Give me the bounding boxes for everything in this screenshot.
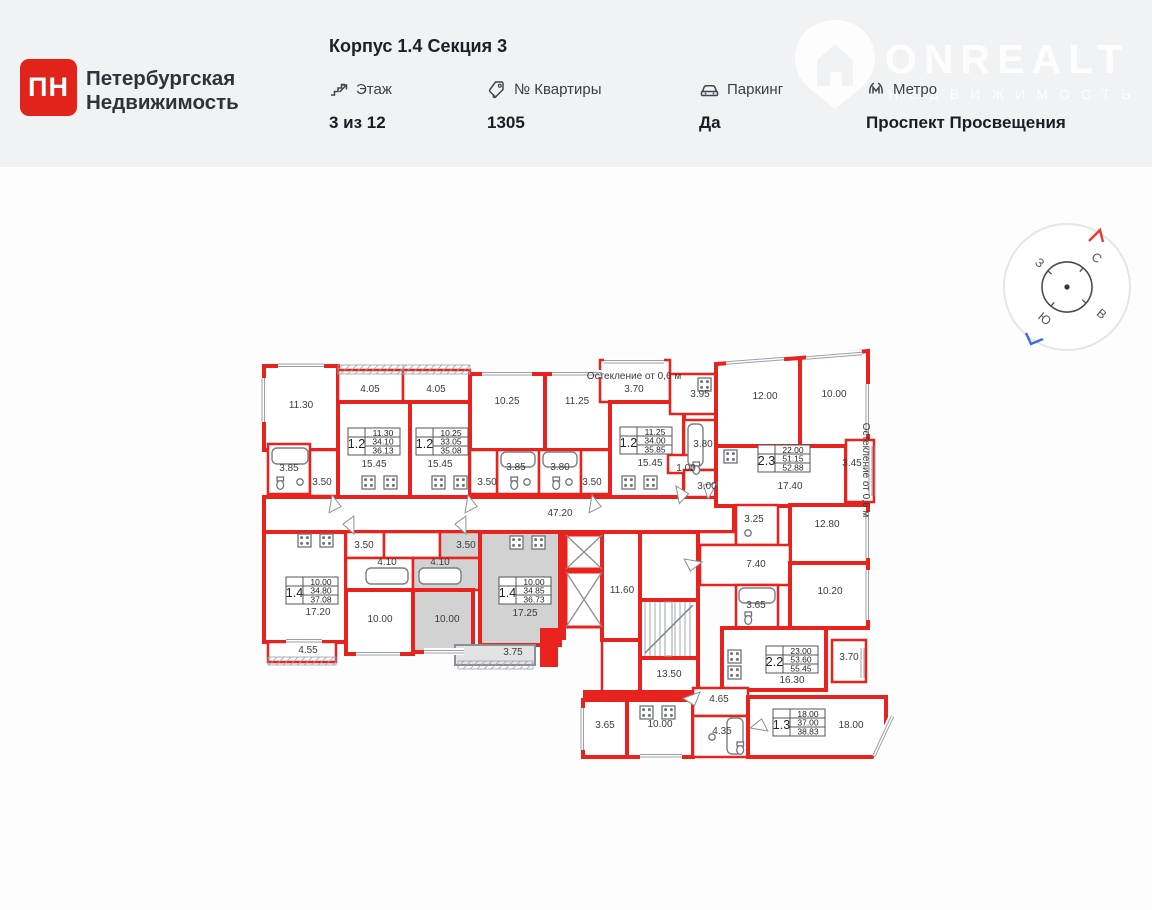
room-area-label: 15.45: [637, 458, 662, 469]
apartment-table[interactable]: 2.223.0053.6055.45: [766, 646, 818, 673]
apartment-area-value: 36.13: [372, 445, 394, 455]
room-area-label: Остекление от 0,6 м: [860, 423, 871, 518]
room-area-label: 4.05: [360, 384, 380, 395]
room-area-label: 15.45: [427, 459, 452, 470]
apartment-table[interactable]: 1.318.0037.0038.83: [773, 709, 825, 736]
room-area-label: 3.95: [690, 389, 710, 400]
room-area-label: 15.45: [361, 459, 386, 470]
room-area-label: 11.60: [610, 585, 635, 596]
apartment-area-value: 37.08: [310, 594, 332, 604]
room-area-label: 4.10: [377, 557, 397, 568]
compass: СВЮЗ: [1004, 224, 1130, 350]
apartment-table[interactable]: 1.210.2533.0535.08: [416, 428, 468, 455]
apartment-type: 1.2: [348, 437, 365, 451]
apartment-area-value: 35.85: [644, 444, 666, 454]
apartment-area-value: 35.08: [440, 445, 462, 455]
apartment-table[interactable]: 1.410.0034.8037.08: [286, 577, 338, 604]
apartment-type: 2.2: [766, 655, 783, 669]
room-area-label: 3.80: [550, 462, 570, 473]
room-area-label: 3.50: [582, 477, 602, 488]
room-area-label: 4.55: [298, 645, 318, 656]
apartment-table[interactable]: 2.322.0051.1552.88: [758, 445, 810, 472]
room-area-label: 3.45: [842, 458, 862, 469]
room-area-label: 10.00: [434, 614, 459, 625]
room-area-label: 11.25: [565, 396, 590, 407]
floor-plan[interactable]: 1.211.3034.1036.131.210.2533.0535.081.21…: [0, 0, 1152, 910]
room-area-label: 3.00: [697, 481, 717, 492]
apartment-type: 1.4: [286, 586, 303, 600]
room-area-label: 3.50: [477, 477, 497, 488]
room-area-label: 3.50: [312, 477, 332, 488]
room-area-label: 10.00: [647, 719, 672, 730]
room-area-label: 3.50: [456, 540, 476, 551]
room-area-label: 4.65: [709, 694, 729, 705]
room-area-label: 18.00: [838, 720, 863, 731]
room-area-label: 3.85: [506, 462, 526, 473]
room-area-label: 4.35: [712, 726, 732, 737]
apartment-area-value: 52.88: [782, 462, 804, 472]
room-area-label: 3.70: [839, 652, 859, 663]
room-area-label: 10.00: [367, 614, 392, 625]
apartment-table[interactable]: 1.410.0034.8536.73: [499, 577, 551, 604]
apartment-area-value: 55.45: [790, 663, 812, 673]
room-area-label: 17.20: [305, 607, 330, 618]
room-area-label: 11.30: [289, 400, 314, 411]
room-area-label: 3.80: [693, 439, 713, 450]
room-area-label: 4.05: [426, 384, 446, 395]
room-area-label: 10.25: [494, 396, 519, 407]
room-area-label: 16.30: [779, 675, 804, 686]
room-area-label: 12.00: [752, 391, 777, 402]
walls-layer: [264, 351, 886, 757]
apartment-area-value: 38.83: [797, 726, 819, 736]
room-area-label: 4.10: [430, 557, 450, 568]
room-area-label: 3.25: [744, 514, 764, 525]
room-area-label: 7.40: [746, 559, 766, 570]
room-area-label: 1.00: [676, 463, 696, 474]
room-area-label: 12.80: [814, 519, 839, 530]
room-area-label: 3.75: [503, 647, 523, 658]
apartment-table[interactable]: 1.211.2534.0035.85: [620, 427, 672, 454]
room-area-label: 3.65: [595, 720, 615, 731]
room-area-label: Остекление от 0,6 м: [587, 371, 682, 382]
room-area-label: 17.40: [777, 481, 802, 492]
room-area-label: 13.50: [656, 669, 681, 680]
room-area-label: 10.00: [821, 389, 846, 400]
page: ONREALT НЕДВИЖИМОСТЬ ПН Петербургская Не…: [0, 0, 1152, 910]
apartment-type: 1.3: [773, 718, 790, 732]
apartment-area-value: 36.73: [523, 594, 545, 604]
room-area-label: 17.25: [512, 608, 537, 619]
apartment-type: 1.2: [620, 436, 637, 450]
room-area-label: 3.85: [279, 463, 299, 474]
apartment-type: 1.2: [416, 437, 433, 451]
apartment-table[interactable]: 1.211.3034.1036.13: [348, 428, 400, 455]
room-area-label: 47.20: [547, 508, 572, 519]
room-area-label: 3.65: [746, 600, 766, 611]
room-area-label: 3.50: [354, 540, 374, 551]
apartment-type: 2.3: [758, 454, 775, 468]
apartment-type: 1.4: [499, 586, 516, 600]
room-area-label: 10.20: [817, 586, 842, 597]
room-area-label: 3.70: [624, 384, 644, 395]
